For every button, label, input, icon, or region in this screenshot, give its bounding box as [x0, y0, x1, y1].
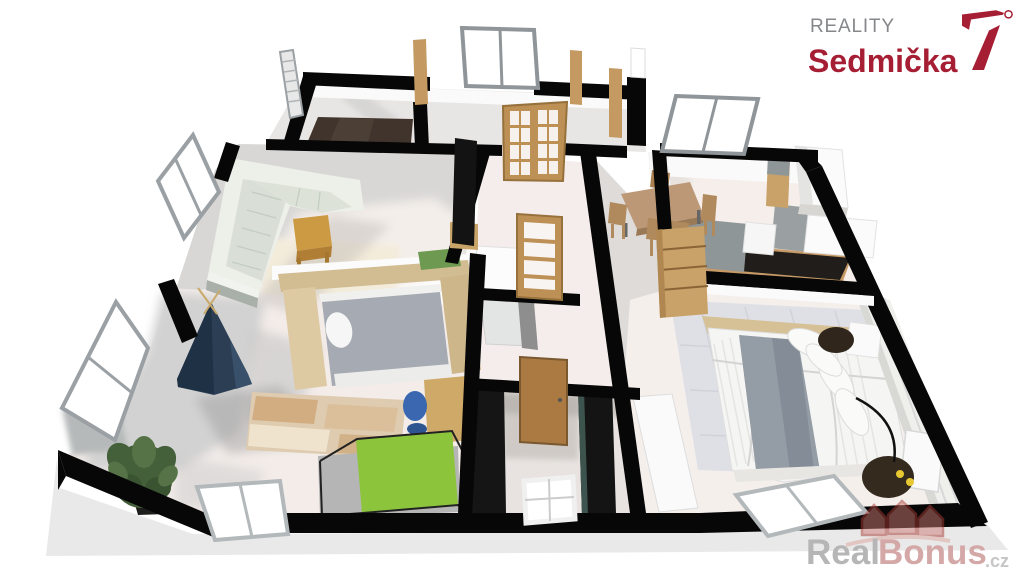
- svg-text:.cz: .cz: [985, 551, 1009, 571]
- svg-text:Real: Real: [806, 533, 880, 572]
- svg-text:REALITY: REALITY: [810, 16, 895, 37]
- svg-text:Bonus: Bonus: [878, 533, 987, 572]
- svg-text:Sedmička: Sedmička: [808, 43, 958, 79]
